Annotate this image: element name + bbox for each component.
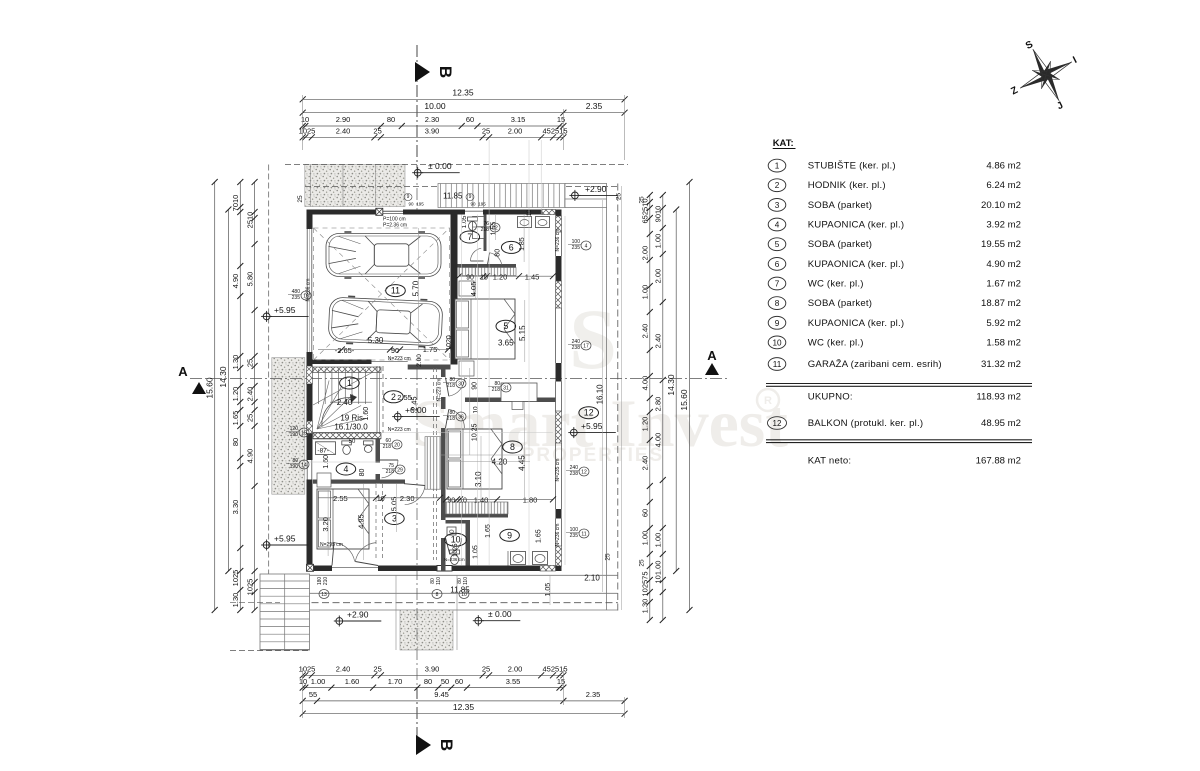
svg-text:2.55: 2.55	[333, 494, 348, 503]
svg-text:20.10 m2: 20.10 m2	[981, 200, 1021, 211]
svg-text:7: 7	[467, 232, 472, 242]
svg-text:80: 80	[424, 677, 432, 686]
svg-text:N=223 cm: N=223 cm	[388, 356, 411, 362]
svg-text:12: 12	[584, 408, 594, 418]
svg-text:25: 25	[616, 193, 623, 201]
svg-text:5.80: 5.80	[245, 272, 254, 287]
svg-text:11.85: 11.85	[443, 191, 463, 200]
svg-text:12.35: 12.35	[453, 702, 475, 712]
svg-text:11: 11	[773, 360, 782, 369]
svg-text:4.90 m2: 4.90 m2	[986, 259, 1021, 270]
svg-text:KAT neto:: KAT neto:	[808, 456, 852, 467]
svg-text:1.65: 1.65	[485, 524, 492, 538]
svg-text:A: A	[178, 364, 188, 379]
svg-text:1.30: 1.30	[231, 355, 240, 370]
svg-text:R: R	[764, 395, 772, 407]
svg-text:+5.95: +5.95	[581, 421, 603, 431]
svg-text:4.90: 4.90	[231, 274, 240, 289]
svg-text:1.00: 1.00	[654, 533, 663, 548]
svg-text:2.00: 2.00	[508, 665, 523, 674]
svg-text:STUBIŠTE (ker. pl.): STUBIŠTE (ker. pl.)	[808, 161, 896, 172]
svg-text:KUPAONICA (ker. pl.): KUPAONICA (ker. pl.)	[808, 318, 905, 329]
svg-text:9.45: 9.45	[434, 690, 449, 699]
svg-text:190: 190	[290, 432, 299, 438]
svg-text:A: A	[707, 348, 717, 363]
svg-text:25: 25	[245, 359, 254, 367]
svg-text:N=295 cm: N=295 cm	[320, 542, 343, 548]
svg-text:167.88 m2: 167.88 m2	[976, 456, 1021, 467]
svg-text:1.45: 1.45	[525, 272, 540, 281]
svg-text:118.93 m2: 118.93 m2	[976, 392, 1021, 403]
svg-text:± 0.00: ± 0.00	[428, 161, 452, 171]
svg-text:KUPAONICA (ker. pl.): KUPAONICA (ker. pl.)	[808, 259, 905, 270]
svg-text:5.05: 5.05	[389, 497, 398, 512]
svg-text:16.10: 16.10	[596, 384, 605, 405]
svg-text:17: 17	[583, 344, 589, 350]
svg-text:9: 9	[507, 530, 512, 540]
svg-text:10: 10	[772, 338, 782, 347]
svg-text:6: 6	[509, 242, 514, 252]
svg-text:2.00: 2.00	[508, 127, 523, 136]
svg-text:1.00: 1.00	[641, 285, 650, 300]
svg-text:N=223 cm: N=223 cm	[437, 379, 443, 402]
svg-text:± 0.00: ± 0.00	[488, 609, 512, 619]
svg-text:25: 25	[297, 195, 304, 203]
svg-text:14: 14	[301, 463, 307, 469]
svg-text:25: 25	[482, 665, 490, 674]
svg-text:+2.90: +2.90	[585, 184, 607, 194]
svg-text:10: 10	[473, 406, 480, 414]
svg-text:3.92 m2: 3.92 m2	[986, 220, 1021, 231]
svg-text:195: 195	[478, 202, 486, 207]
svg-text:2.35: 2.35	[586, 690, 601, 699]
svg-text:1.60: 1.60	[323, 455, 330, 469]
svg-text:UKUPNO:: UKUPNO:	[808, 392, 853, 403]
svg-text:12: 12	[581, 470, 587, 476]
svg-text:1: 1	[775, 162, 780, 171]
svg-text:WC (ker. pl.): WC (ker. pl.)	[808, 279, 864, 290]
svg-text:25: 25	[373, 127, 381, 136]
svg-text:25: 25	[373, 665, 381, 674]
svg-text:218: 218	[447, 416, 456, 422]
svg-text:2.40: 2.40	[641, 456, 650, 471]
svg-text:WC (ker. pl.): WC (ker. pl.)	[808, 337, 864, 348]
svg-text:60: 60	[641, 509, 650, 517]
svg-text:190: 190	[290, 464, 299, 470]
svg-text:30: 30	[458, 382, 464, 388]
svg-text:48.95 m2: 48.95 m2	[981, 418, 1021, 429]
svg-text:195: 195	[416, 202, 424, 207]
svg-text:5.92 m2: 5.92 m2	[986, 318, 1021, 329]
svg-text:22: 22	[492, 226, 498, 232]
svg-text:GARAŽA (zaribani cem. esrih): GARAŽA (zaribani cem. esrih)	[808, 359, 942, 370]
svg-text:1.67 m2: 1.67 m2	[986, 279, 1021, 290]
svg-text:3.90: 3.90	[425, 127, 440, 136]
svg-text:90: 90	[470, 202, 476, 207]
svg-text:80: 80	[495, 249, 502, 257]
svg-text:80: 80	[359, 469, 366, 477]
svg-text:25: 25	[482, 127, 490, 136]
svg-text:25: 25	[639, 559, 646, 567]
svg-text:50: 50	[349, 439, 356, 445]
svg-text:SOBA (parket): SOBA (parket)	[808, 298, 872, 309]
svg-text:90: 90	[447, 498, 455, 505]
svg-text:10: 10	[299, 677, 307, 686]
svg-text:12: 12	[773, 419, 782, 428]
svg-text:80: 80	[387, 115, 395, 124]
svg-text:18.87 m2: 18.87 m2	[981, 298, 1021, 309]
svg-text:238: 238	[572, 345, 581, 351]
svg-text:3.10: 3.10	[474, 471, 483, 487]
svg-text:1025: 1025	[299, 665, 316, 674]
svg-text:N=223 cm: N=223 cm	[388, 427, 411, 433]
svg-text:1.20: 1.20	[231, 387, 240, 402]
svg-text:+5.95: +5.95	[274, 534, 296, 544]
svg-text:N=236 cm: N=236 cm	[555, 229, 561, 252]
svg-text:1.58 m2: 1.58 m2	[986, 337, 1021, 348]
svg-text:25: 25	[605, 553, 612, 561]
svg-text:1.20: 1.20	[493, 272, 508, 281]
svg-text:210: 210	[323, 577, 329, 586]
svg-text:2.00: 2.00	[654, 269, 663, 284]
svg-text:KAT:: KAT:	[773, 138, 794, 149]
svg-text:2.40: 2.40	[336, 127, 351, 136]
svg-text:1.00: 1.00	[641, 531, 650, 546]
svg-text:B: B	[437, 739, 456, 751]
svg-text:14.30: 14.30	[666, 374, 676, 396]
svg-text:1: 1	[347, 378, 352, 388]
svg-text:4.45: 4.45	[518, 455, 527, 471]
svg-text:15.60: 15.60	[204, 377, 214, 399]
svg-text:16.1/30.0: 16.1/30.0	[334, 422, 368, 431]
svg-text:238: 238	[570, 471, 579, 477]
svg-text:4.90: 4.90	[245, 449, 254, 464]
svg-text:3.90: 3.90	[425, 665, 440, 674]
svg-text:102575: 102575	[641, 571, 650, 596]
svg-text:110: 110	[436, 577, 442, 585]
svg-text:1.30: 1.30	[231, 593, 240, 608]
svg-text:2.30: 2.30	[400, 494, 415, 503]
svg-text:1.05: 1.05	[461, 215, 468, 228]
svg-text:1.05: 1.05	[545, 583, 552, 597]
svg-text:1025: 1025	[453, 543, 459, 557]
svg-text:N=235 cm: N=235 cm	[555, 459, 561, 482]
svg-text:SOBA (parket): SOBA (parket)	[808, 200, 872, 211]
svg-text:HODNIK (ker. pl.): HODNIK (ker. pl.)	[808, 180, 886, 191]
svg-text:4.20: 4.20	[492, 458, 508, 467]
svg-text:36: 36	[458, 415, 464, 421]
svg-text:2.90: 2.90	[336, 115, 351, 124]
svg-text:1.65: 1.65	[231, 411, 240, 426]
svg-text:9010: 9010	[654, 206, 663, 223]
svg-text:2.40: 2.40	[245, 387, 254, 402]
svg-text:B: B	[436, 66, 455, 78]
svg-text:2.40: 2.40	[641, 324, 650, 339]
svg-text:2.00: 2.00	[641, 246, 650, 261]
svg-text:7010: 7010	[231, 195, 240, 212]
svg-text:3.30: 3.30	[231, 500, 240, 515]
svg-text:2: 2	[775, 181, 780, 190]
svg-text:60: 60	[466, 115, 474, 124]
svg-text:4: 4	[343, 464, 348, 474]
svg-text:15: 15	[301, 431, 307, 437]
svg-text:3: 3	[775, 201, 780, 210]
svg-text:31.32 m2: 31.32 m2	[981, 359, 1021, 370]
svg-text:13: 13	[321, 592, 327, 598]
svg-text:2.40: 2.40	[654, 334, 663, 349]
svg-text:4.95: 4.95	[357, 514, 366, 529]
svg-text:19.55 m2: 19.55 m2	[981, 239, 1021, 250]
svg-text:50: 50	[441, 677, 449, 686]
svg-text:10: 10	[461, 592, 467, 598]
svg-text:5: 5	[503, 321, 508, 331]
svg-text:5.30: 5.30	[368, 336, 384, 345]
svg-text:29: 29	[397, 468, 403, 474]
svg-text:31: 31	[503, 386, 509, 392]
svg-text:452515: 452515	[542, 127, 567, 136]
svg-text:1.30: 1.30	[641, 599, 650, 614]
svg-text:N=236 cm: N=236 cm	[555, 524, 561, 547]
svg-text:1.05: 1.05	[473, 545, 480, 559]
svg-text:1025: 1025	[231, 570, 240, 587]
svg-text:1.60: 1.60	[363, 407, 370, 421]
svg-text:11: 11	[391, 286, 400, 296]
svg-text:2.10: 2.10	[584, 574, 600, 583]
svg-text:4: 4	[585, 244, 588, 250]
svg-text:2.40: 2.40	[337, 398, 353, 407]
svg-text:235: 235	[572, 245, 581, 251]
svg-text:20: 20	[394, 443, 400, 449]
svg-text:5.70: 5.70	[411, 280, 420, 296]
svg-text:218: 218	[386, 469, 395, 475]
svg-text:25: 25	[245, 414, 254, 422]
svg-text:8: 8	[510, 442, 515, 452]
svg-text:4.86 m2: 4.86 m2	[986, 161, 1021, 172]
svg-text:15.60: 15.60	[679, 389, 689, 411]
svg-text:2.45: 2.45	[409, 396, 418, 411]
svg-text:1.60: 1.60	[345, 677, 360, 686]
svg-text:BALKON (protukl. ker. pl.): BALKON (protukl. ker. pl.)	[808, 418, 924, 429]
svg-text:+2.90: +2.90	[347, 610, 369, 620]
svg-text:10: 10	[301, 115, 309, 124]
svg-text:SOBA (parket): SOBA (parket)	[808, 239, 872, 250]
svg-text:19 Ris: 19 Ris	[340, 413, 363, 422]
svg-text:218: 218	[383, 444, 392, 450]
svg-text:10: 10	[527, 209, 533, 216]
svg-text:90: 90	[466, 274, 474, 281]
svg-text:218: 218	[492, 387, 501, 393]
svg-text:1025: 1025	[245, 579, 254, 596]
svg-text:5: 5	[775, 240, 780, 249]
svg-text:218: 218	[447, 383, 456, 389]
svg-text:235: 235	[292, 295, 301, 301]
svg-text:4.00: 4.00	[654, 433, 663, 448]
svg-text:2.00: 2.00	[416, 354, 423, 367]
svg-text:3.55: 3.55	[506, 677, 521, 686]
svg-text:110: 110	[463, 577, 469, 585]
svg-text:1.70: 1.70	[388, 677, 403, 686]
svg-text:1.00: 1.00	[311, 677, 326, 686]
svg-text:2510: 2510	[245, 212, 254, 229]
svg-text:25: 25	[639, 196, 646, 204]
svg-text:8: 8	[775, 299, 780, 308]
svg-text:3.15: 3.15	[511, 115, 526, 124]
svg-text:12.35: 12.35	[452, 88, 474, 98]
svg-text:3.65: 3.65	[498, 339, 514, 348]
svg-text:6.24 m2: 6.24 m2	[986, 180, 1021, 191]
svg-text:7: 7	[775, 280, 780, 289]
svg-text:2.30: 2.30	[425, 115, 440, 124]
svg-text:4: 4	[775, 221, 780, 230]
svg-text:10.00: 10.00	[424, 101, 446, 111]
svg-text:-87-: -87-	[317, 448, 329, 455]
svg-text:16: 16	[303, 294, 309, 300]
svg-text:4.00: 4.00	[641, 376, 650, 391]
svg-text:15: 15	[557, 115, 565, 124]
svg-text:2.40: 2.40	[336, 665, 351, 674]
svg-text:8: 8	[436, 592, 439, 598]
svg-text:11: 11	[581, 532, 586, 538]
svg-text:4.05: 4.05	[469, 282, 478, 297]
svg-text:101.00: 101.00	[654, 561, 663, 584]
svg-text:1.85: 1.85	[519, 237, 526, 251]
svg-text:9: 9	[775, 319, 780, 328]
svg-text:5.15: 5.15	[518, 325, 527, 341]
svg-text:1.00: 1.00	[654, 234, 663, 249]
svg-text:KUPAONICA (ker. pl.): KUPAONICA (ker. pl.)	[808, 220, 905, 231]
svg-text:218: 218	[481, 227, 490, 233]
svg-text:80: 80	[231, 438, 240, 446]
svg-text:14.30: 14.30	[218, 366, 228, 388]
svg-text:9: 9	[407, 194, 410, 200]
svg-text:1.65: 1.65	[536, 529, 543, 543]
svg-text:2.35: 2.35	[586, 101, 603, 111]
svg-text:90: 90	[408, 202, 414, 207]
svg-text:452515: 452515	[542, 665, 567, 674]
svg-text:1.20: 1.20	[641, 417, 650, 432]
svg-text:235: 235	[570, 533, 579, 539]
svg-text:60: 60	[455, 677, 463, 686]
svg-text:15: 15	[557, 677, 565, 686]
svg-text:P=2.36 cm: P=2.36 cm	[383, 223, 407, 229]
svg-text:9: 9	[469, 194, 472, 200]
svg-text:1025: 1025	[299, 127, 316, 136]
svg-text:6: 6	[775, 260, 780, 269]
svg-text:3.20: 3.20	[321, 517, 330, 532]
svg-text:55: 55	[309, 690, 317, 699]
svg-text:10: 10	[451, 535, 461, 545]
svg-text:+5.95: +5.95	[274, 305, 296, 315]
svg-text:2.80: 2.80	[654, 397, 663, 412]
svg-text:2: 2	[391, 392, 396, 402]
